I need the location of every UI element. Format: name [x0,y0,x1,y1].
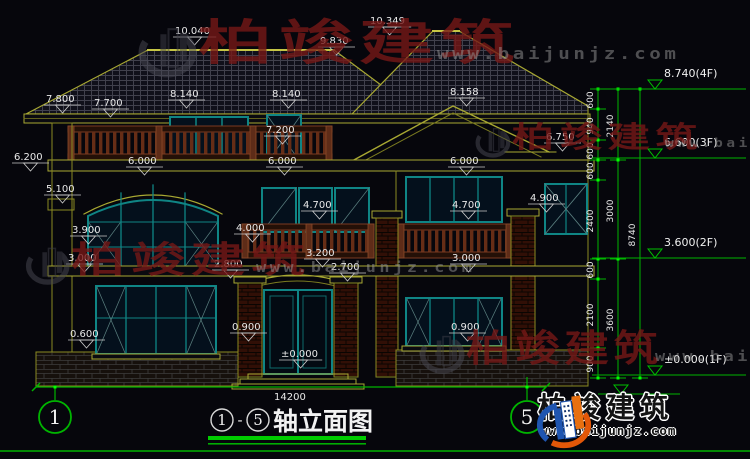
svg-text:5.100: 5.100 [46,184,75,195]
chain-segment-value: 8740 [628,223,638,246]
title-underline [208,436,366,440]
svg-text:6.200: 6.200 [14,152,43,163]
right-dimension-chain: 6009406006002400600210090021403000360087… [586,67,746,394]
svg-text:4.700: 4.700 [303,200,332,211]
svg-text:10.040: 10.040 [175,26,210,37]
second-floor-slab [48,266,594,276]
svg-text:14200: 14200 [274,392,306,403]
svg-text:0.900: 0.900 [451,322,480,333]
svg-text:0.600: 0.600 [70,329,99,340]
svg-text:8.140: 8.140 [272,89,301,100]
svg-text:6.000: 6.000 [450,156,479,167]
svg-text:0.900: 0.900 [232,322,261,333]
brand-logo: 柏竣建筑 www.baijunjz.com [534,388,750,458]
svg-text:2.700: 2.700 [331,262,360,273]
svg-text:6.000: 6.000 [128,156,157,167]
brand-logo-mark [534,388,596,456]
dim-label: 14200 [274,392,306,403]
svg-text:10.349: 10.349 [370,16,405,27]
chain-segment-value: 3600 [606,308,616,331]
second-floor-arched-window [84,185,222,266]
title-axis-end: 5 [253,411,263,429]
svg-text:7.700: 7.700 [94,98,123,109]
title-separator: - [237,411,242,429]
level-marker: 6.600(3F) [592,136,746,158]
axis-bubble-1: 1 [39,401,71,433]
svg-text:7.200: 7.200 [266,125,295,136]
svg-text:6.750: 6.750 [546,132,575,143]
svg-text:6.000: 6.000 [268,156,297,167]
svg-text:3.000: 3.000 [68,253,97,264]
dim-label: 10.349 [368,16,411,35]
dim-label: 5.100 [44,184,81,203]
drawing-title: 1 - 5 轴立面图 [208,407,373,445]
second-floor-right-balcony [398,177,512,258]
svg-text:3.600(2F): 3.600(2F) [664,236,717,249]
svg-text:±0.000: ±0.000 [281,349,318,360]
svg-text:2.800: 2.800 [214,259,243,270]
dim-label: 6.200 [12,152,49,171]
svg-text:±0.000(1F): ±0.000(1F) [664,353,727,366]
axis-bubble-5-label: 5 [521,405,534,429]
title-caption: 轴立面图 [273,407,373,436]
first-floor-right-window [396,298,588,386]
svg-text:4.900: 4.900 [530,193,559,204]
chain-segment-value: 600 [586,162,596,179]
svg-text:4.000: 4.000 [236,223,265,234]
title-axis-start: 1 [217,411,227,429]
chain-segment-value: 3000 [606,199,616,222]
dim-label: 10.040 [173,26,216,45]
svg-text:6.600(3F): 6.600(3F) [664,136,717,149]
svg-text:3.200: 3.200 [306,248,335,259]
chain-segment-value: 2140 [606,114,616,137]
first-floor-left-window [36,286,238,386]
chain-segment-value: 900 [586,355,596,372]
level-marker: ±0.000(1F) [592,353,746,375]
svg-text:8.158: 8.158 [450,87,479,98]
svg-text:7.800: 7.800 [46,94,75,105]
svg-text:9.830: 9.830 [320,36,349,47]
level-marker: 3.600(2F) [592,236,746,258]
second-floor-right-window [545,184,587,234]
svg-text:3.000: 3.000 [452,253,481,264]
chain-segment-value: 2400 [586,209,596,232]
svg-text:3.900: 3.900 [72,225,101,236]
level-marker: 8.740(4F) [592,67,746,89]
axis-bubble-1-label: 1 [49,405,62,429]
chain-segment-value: 600 [586,91,596,108]
svg-text:4.700: 4.700 [452,200,481,211]
cad-canvas: 1 5 1 - 5 轴立面图 10.0409.83010.3498.1408.1… [0,0,750,459]
dim-label: 6.750 [544,132,581,151]
chain-segment-value: 600 [586,142,596,159]
chain-segment-value: 600 [586,261,596,278]
chain-segment-value: 940 [586,117,596,134]
svg-text:8.740(4F): 8.740(4F) [664,67,717,80]
chain-segment-value: 2100 [586,303,596,326]
svg-text:8.140: 8.140 [170,89,199,100]
